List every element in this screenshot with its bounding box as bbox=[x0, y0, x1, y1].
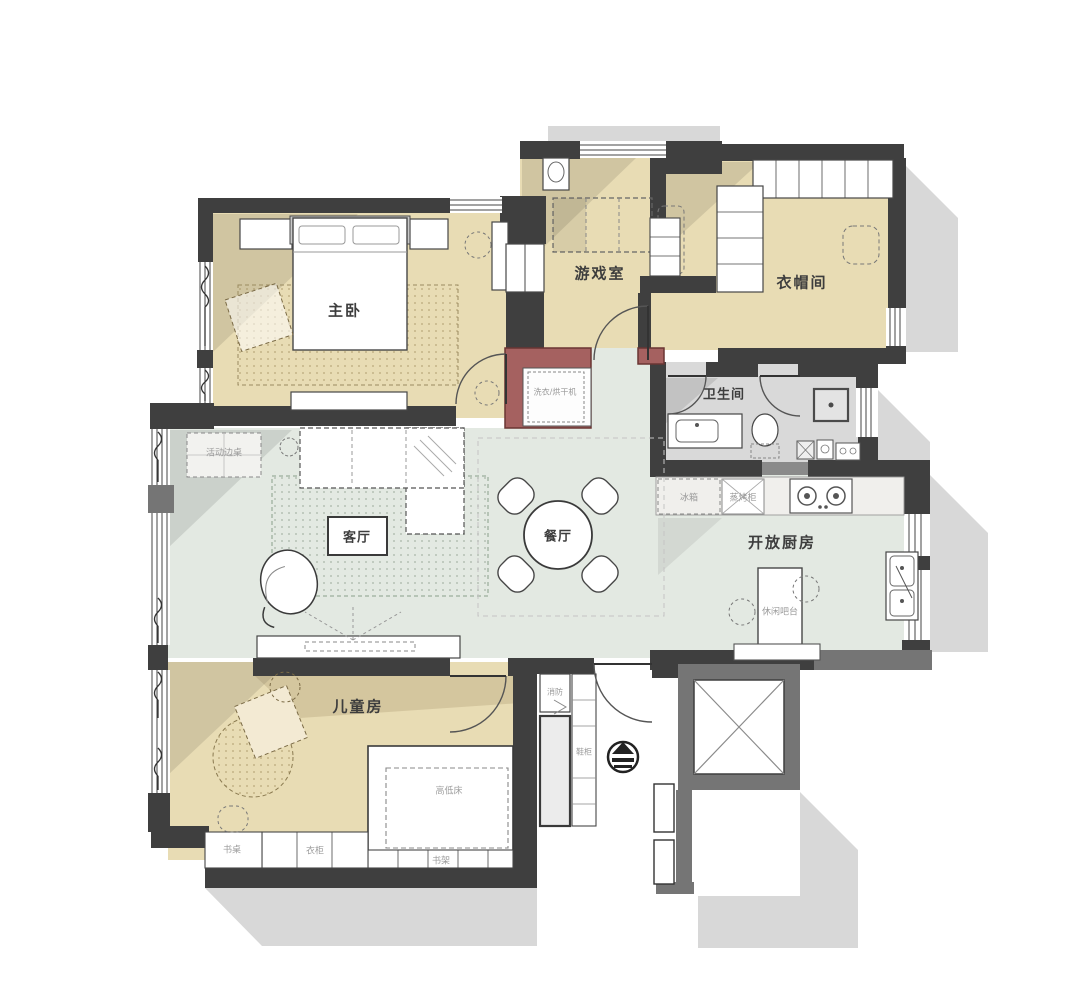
floor-plan-canvas: 主卧 游戏室 衣帽间 卫生间 客厅 餐厅 开放厨房 儿童房 洗衣/烘干机 冰箱 … bbox=[0, 0, 1080, 992]
tv-cabinet bbox=[257, 636, 460, 658]
fixture-label-bunk-bed: 高低床 bbox=[435, 784, 462, 797]
entry-hall bbox=[540, 674, 674, 884]
fixture-label-steam-oven: 蒸烤柜 bbox=[729, 491, 756, 504]
fixture-label-wardrobe: 衣柜 bbox=[306, 844, 324, 857]
fixture-label-shoe-cabinet: 鞋柜 bbox=[576, 747, 592, 758]
bed-bench bbox=[291, 392, 407, 410]
nightstand bbox=[240, 219, 292, 249]
fixture-label-bar-counter: 休闲吧台 bbox=[762, 605, 798, 618]
game-room-window bbox=[580, 141, 666, 158]
room-label-dining-room: 餐厅 bbox=[544, 526, 572, 545]
fixture-label-washer-dryer: 洗衣/烘干机 bbox=[534, 387, 577, 398]
living-bay-window bbox=[148, 429, 170, 645]
bunk-bed bbox=[368, 746, 513, 852]
cloakroom-right-window bbox=[886, 308, 906, 346]
washbasin-cabinet bbox=[543, 158, 569, 190]
pillow bbox=[299, 226, 345, 244]
master-top-window bbox=[450, 197, 502, 213]
vanity bbox=[668, 414, 742, 448]
room-label-kids-room: 儿童房 bbox=[332, 696, 383, 717]
door-frame bbox=[654, 840, 674, 884]
toilet bbox=[752, 414, 778, 446]
nightstand bbox=[410, 219, 448, 249]
pillow bbox=[353, 226, 399, 244]
room-label-bathroom: 卫生间 bbox=[703, 384, 745, 403]
entry-cabinet bbox=[540, 716, 570, 826]
fixture-label-desk: 书桌 bbox=[223, 843, 241, 856]
room-label-cloakroom: 衣帽间 bbox=[776, 272, 827, 293]
floor-plan-drawing bbox=[0, 0, 1080, 992]
fixture-label-fire-cabinet: 消防 bbox=[547, 687, 563, 698]
room-label-master-bedroom: 主卧 bbox=[328, 300, 362, 321]
closet-run-left bbox=[717, 186, 763, 292]
room-label-game-room: 游戏室 bbox=[574, 263, 625, 284]
brand-mark-icon bbox=[608, 742, 638, 772]
room-label-living-room: 客厅 bbox=[343, 527, 371, 546]
cabinet bbox=[650, 218, 680, 276]
fixture-label-fridge: 冰箱 bbox=[680, 491, 698, 504]
door-frame bbox=[654, 784, 674, 832]
sofa bbox=[300, 428, 464, 488]
bathroom-window bbox=[856, 388, 878, 437]
elevator-shaft bbox=[694, 680, 784, 774]
fixture-label-bookshelf: 书架 bbox=[432, 854, 450, 867]
bar-base bbox=[734, 644, 820, 660]
entry-door bbox=[594, 664, 652, 722]
fixture-label-side-table: 活动边桌 bbox=[206, 446, 242, 459]
kids-left-window bbox=[148, 670, 170, 793]
closet-run-top bbox=[753, 160, 893, 198]
room-label-open-kitchen: 开放厨房 bbox=[748, 532, 816, 553]
